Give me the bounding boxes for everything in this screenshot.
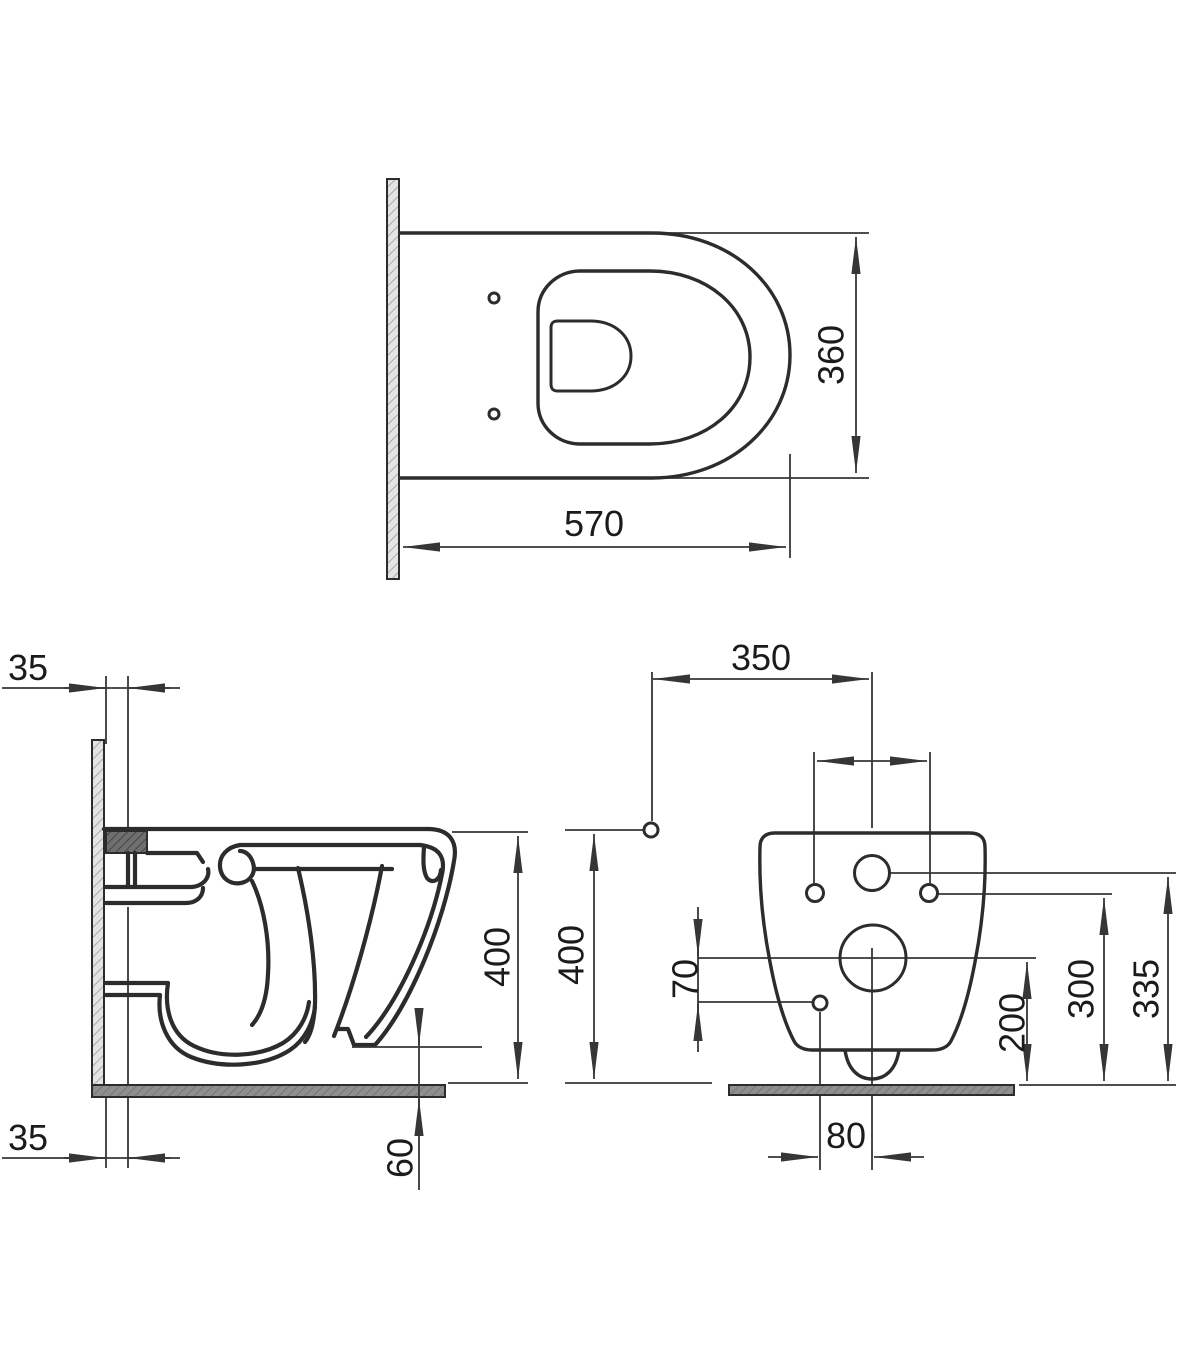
floor-section-bar	[729, 1085, 1014, 1095]
front-view: 350 400 70 200 300 335 80	[551, 637, 1177, 1170]
back-step	[147, 853, 203, 862]
bowl-rim-inner	[538, 271, 750, 444]
flush-channel-top	[106, 869, 208, 887]
seat-hole-icon	[489, 293, 499, 303]
dimension-label-hole-drop: 70	[665, 959, 706, 999]
dimension-label-drain-offset: 80	[826, 1115, 866, 1156]
dimension-label-fixing-height: 300	[1061, 959, 1102, 1019]
supply-point-icon	[644, 823, 658, 837]
flush-channel-bottom	[106, 888, 203, 903]
dimension-label-inlet-height: 335	[1126, 959, 1167, 1019]
dimension-label-floor-clearance: 60	[380, 1138, 421, 1178]
bowl-outer-u	[106, 995, 315, 1065]
dimension-label-depth: 570	[564, 503, 624, 544]
seat-hole-icon	[489, 409, 499, 419]
dimension-label-inlet-offset: 350	[731, 637, 791, 678]
wall-section-bar	[92, 740, 104, 1097]
dimension-label-wall-offset-bottom: 35	[8, 1117, 48, 1158]
fixing-hole-icon	[921, 885, 938, 902]
fixing-hole-icon	[807, 885, 824, 902]
flush-distributor-hook	[220, 845, 254, 883]
toilet-dimension-drawing: 360 570	[0, 0, 1180, 1368]
top-view: 360 570	[387, 179, 869, 579]
dimension-label-drain-height: 200	[992, 993, 1033, 1053]
ceramic-section	[104, 829, 455, 1065]
mounting-anchor-block	[106, 831, 147, 853]
dimension-label-height: 400	[477, 927, 518, 987]
water-inlet-hole-icon	[855, 856, 890, 891]
wall-section-bar	[387, 179, 399, 579]
dimension-label-height: 400	[551, 925, 592, 985]
dimension-label-wall-offset-top: 35	[8, 647, 48, 688]
trap-weir-right	[334, 866, 382, 1036]
dimension-label-width: 360	[811, 325, 852, 385]
floor-section-bar	[92, 1085, 445, 1097]
bowl-water-line	[252, 881, 268, 1025]
flush-water-area	[551, 321, 631, 391]
side-view: 35 35 400 60	[2, 647, 528, 1190]
technical-drawing-page: 360 570	[0, 0, 1180, 1368]
small-hole-icon	[813, 996, 827, 1010]
